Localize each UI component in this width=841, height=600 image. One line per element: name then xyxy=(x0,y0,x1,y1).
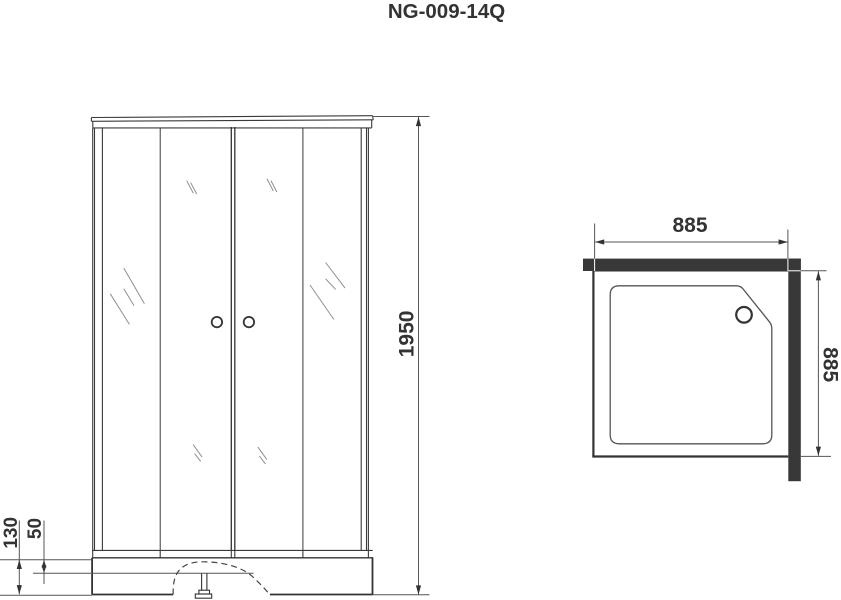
svg-text:130: 130 xyxy=(1,517,22,549)
svg-text:50: 50 xyxy=(25,518,46,539)
svg-text:1950: 1950 xyxy=(396,311,419,358)
svg-text:NG-009-14Q: NG-009-14Q xyxy=(388,0,505,23)
svg-text:885: 885 xyxy=(672,214,707,237)
svg-text:885: 885 xyxy=(818,347,841,382)
